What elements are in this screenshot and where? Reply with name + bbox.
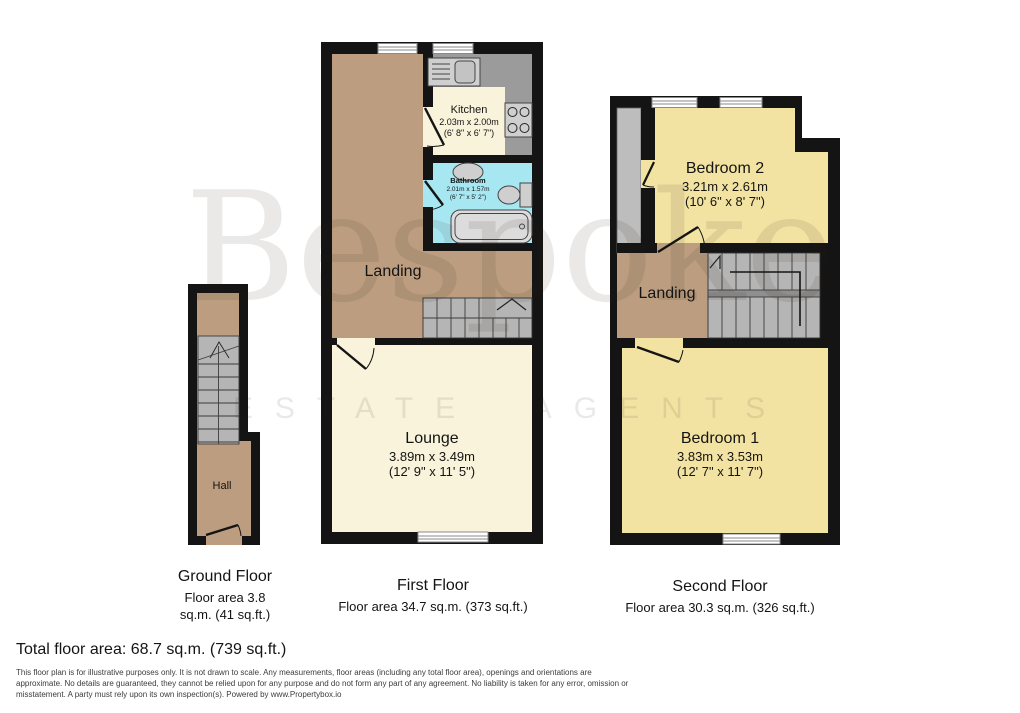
disclaimer-text: This floor plan is for illustrative purp… [16,667,628,700]
room-name: Bedroom 2 [652,160,798,179]
room-size-imperial: (12' 9" x 11' 5") [359,464,505,479]
floorplan-page: Bespoke ESTATE AGENTS Hall Kitchen 2.03m… [0,0,1020,713]
window-icon [723,534,780,544]
caption-first-floor: First Floor Floor area 34.7 sq.m. (373 s… [305,576,561,616]
room-name: Bedroom 1 [647,430,793,449]
eaves-storage [617,108,641,253]
floor-title: First Floor [305,576,561,597]
door-opening [635,338,683,348]
room-size-metric: 2.01m x 1.57m [432,186,504,194]
caption-ground-floor: Ground Floor Floor area 3.8 sq.m. (41 sq… [140,567,310,624]
room-name: Kitchen [428,104,510,117]
total-floor-area: Total floor area: 68.7 sq.m. (739 sq.ft.… [16,641,286,659]
ground-floor-plan [188,284,260,545]
room-size-metric: 3.89m x 3.49m [359,449,505,464]
floor-area: Floor area 3.8 [140,590,310,607]
stairs-icon [423,298,532,338]
room-size-imperial: (12' 7" x 11' 7") [647,464,793,479]
room-name: Lounge [359,430,505,449]
disclaimer-line: misstatement. A party must rely upon its… [16,689,628,700]
window-icon [652,98,697,108]
caption-second-floor: Second Floor Floor area 30.3 sq.m. (326 … [590,577,850,617]
stairs-icon [198,336,239,444]
disclaimer-line: approximate. No details are guaranteed, … [16,678,628,689]
room-label-landing-first: Landing [351,263,435,282]
room-label-bathroom: Bathroom 2.01m x 1.57m (6' 7" x 5' 2") [432,177,504,201]
room-name: Bathroom [432,177,504,186]
floor-title: Second Floor [590,577,850,598]
floor-area: Floor area 34.7 sq.m. (373 sq.ft.) [305,599,561,616]
room-label-kitchen: Kitchen 2.03m x 2.00m (6' 8" x 6' 7") [428,104,510,138]
room-name: Landing [351,263,435,282]
room-size-metric: 2.03m x 2.00m [428,117,510,128]
room-label-bedroom1: Bedroom 1 3.83m x 3.53m (12' 7" x 11' 7"… [647,430,793,480]
room-size-imperial: (6' 8" x 6' 7") [428,128,510,139]
room-name: Hall [193,480,251,493]
door-opening [337,338,375,345]
room-label-lounge: Lounge 3.89m x 3.49m (12' 9" x 11' 5") [359,430,505,480]
stairs-icon [708,253,820,338]
disclaimer-line: This floor plan is for illustrative purp… [16,667,628,678]
room-label-hall: Hall [193,480,251,493]
room-size-metric: 3.83m x 3.53m [647,449,793,464]
floor-title: Ground Floor [140,567,310,588]
window-icon [433,44,473,54]
room-size-imperial: (10' 6" x 8' 7") [652,194,798,209]
floor-area: Floor area 30.3 sq.m. (326 sq.ft.) [590,600,850,617]
room-size-metric: 3.21m x 2.61m [652,179,798,194]
window-icon [418,532,488,542]
bath-icon [451,210,532,243]
window-icon [378,44,417,54]
floor-area: sq.m. (41 sq.ft.) [140,607,310,624]
room-size-imperial: (6' 7" x 5' 2") [432,194,504,202]
window-icon [720,98,762,108]
room-label-landing-second: Landing [625,285,709,304]
sink-drainer-icon [428,58,480,86]
room-name: Landing [625,285,709,304]
room-label-bedroom2: Bedroom 2 3.21m x 2.61m (10' 6" x 8' 7") [652,160,798,210]
